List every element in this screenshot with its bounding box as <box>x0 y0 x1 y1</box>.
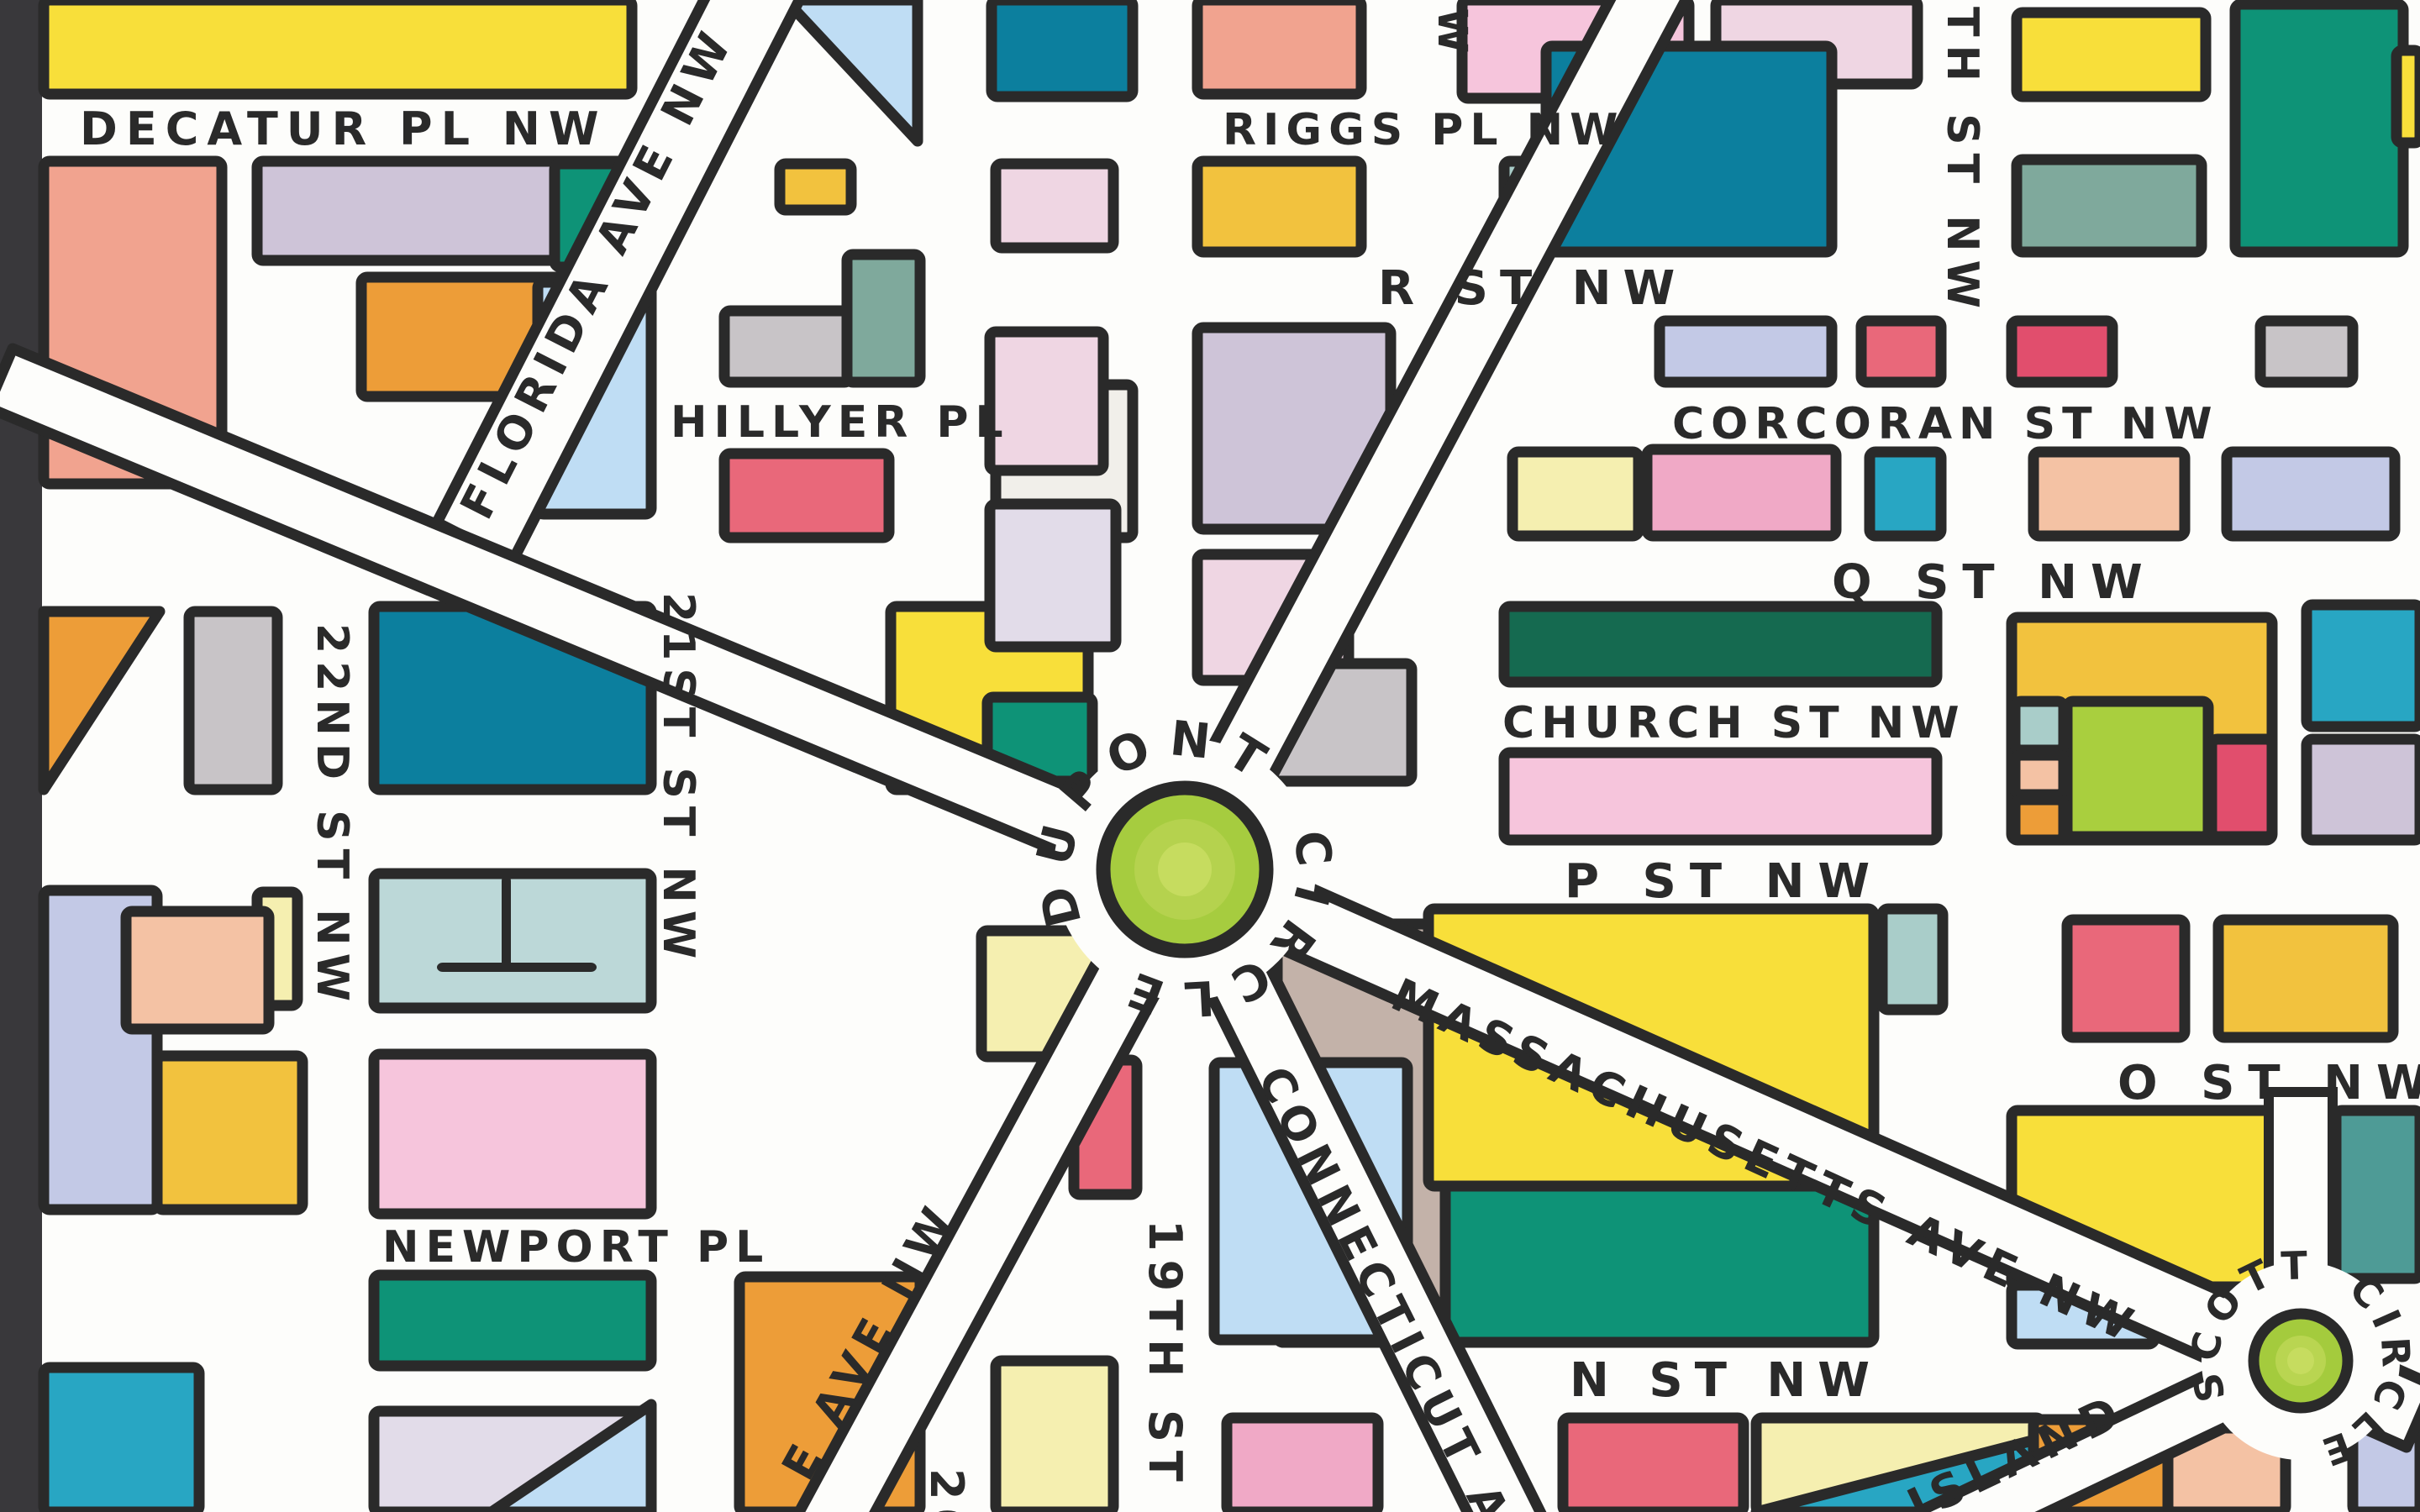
map-svg: DECATUR PL NWRIGGS PL NWR ST NWHILLYER P… <box>0 0 2420 1512</box>
scan-edge-strip <box>0 0 42 1512</box>
city-block-13 <box>2396 50 2420 143</box>
city-block-53 <box>374 1054 651 1214</box>
street-label-r-st-nw: R ST NW <box>1378 261 1686 316</box>
city-block-55 <box>374 1275 651 1366</box>
city-block-34 <box>1504 753 1937 840</box>
city-block-7 <box>992 0 1133 97</box>
street-label-21st-st-nw: 21ST ST NW <box>653 592 703 966</box>
city-block-21 <box>847 255 920 382</box>
city-block-60 <box>996 1361 1113 1512</box>
city-block-14 <box>1197 161 1361 252</box>
city-block-41 <box>2307 605 2420 727</box>
city-block-78 <box>2067 920 2185 1037</box>
city-block-27 <box>2260 321 2353 382</box>
city-block-8 <box>1197 0 1361 94</box>
city-block-24 <box>1660 321 1832 382</box>
street-label-newport-pl: NEWPORT PL <box>382 1222 770 1273</box>
street-label-decatur-pl-nw: DECATUR PL NW <box>80 102 608 155</box>
city-block-11 <box>2017 13 2206 97</box>
street-label-q-st-nw: Q ST NW <box>1832 555 2156 610</box>
city-block-33 <box>1504 606 1937 682</box>
street-label-18th-st-nw: W <box>1428 8 1476 53</box>
city-block-51 <box>502 875 511 969</box>
city-block-56 <box>44 1368 199 1512</box>
city-block-20 <box>724 311 850 382</box>
city-block-29 <box>1647 449 1836 536</box>
city-block-38 <box>2015 755 2064 795</box>
street-label-22nd-st-nw: 22ND ST NW <box>307 623 357 1009</box>
city-block-22 <box>724 454 889 538</box>
city-block-75 <box>1563 1418 1744 1512</box>
city-block-40 <box>2212 739 2272 837</box>
city-block-36 <box>2067 701 2208 837</box>
city-block-42 <box>2307 739 2420 840</box>
street-label-church-st-nw: CHURCH ST NW <box>1502 698 1966 748</box>
dupont-circle-park-center <box>1158 843 1212 896</box>
city-block-63 <box>990 504 1116 647</box>
city-block-28 <box>1512 452 1639 536</box>
street-label-p-st-nw: P ST NW <box>1565 854 1883 909</box>
city-block-71 <box>1882 909 1943 1010</box>
city-block-32 <box>2227 452 2395 536</box>
street-label-20th-st-nw: 20 <box>920 1468 973 1512</box>
city-block-37 <box>2015 701 2064 750</box>
city-block-52 <box>437 963 597 972</box>
street-label-riggs-pl-nw: RIGGS PL NW <box>1223 105 1625 155</box>
city-block-12 <box>2235 4 2403 252</box>
city-block-79 <box>2218 920 2393 1037</box>
street-label-19th-st-nw: 19TH ST <box>1139 1220 1192 1490</box>
street-label-o-st-nw: O ST NW <box>2117 1056 2420 1110</box>
city-block-19 <box>780 164 851 210</box>
street-label-n-st-nw: N ST NW <box>1570 1353 1881 1408</box>
city-block-74 <box>1227 1418 1378 1512</box>
street-label-corcoran-st-nw: CORCORAN ST NW <box>1672 399 2219 449</box>
city-block-25 <box>1861 321 1941 382</box>
city-block-30 <box>1870 452 1941 536</box>
city-block-39 <box>2015 800 2064 840</box>
city-block-54 <box>157 1056 302 1210</box>
street-label-17th-st-nw: TH ST NW <box>1937 7 1987 317</box>
city-block-26 <box>2012 321 2112 382</box>
city-block-50 <box>374 874 651 1008</box>
city-block-0 <box>44 0 632 94</box>
city-block-49 <box>126 911 269 1029</box>
city-block-46 <box>189 612 277 790</box>
dupont-map: DECATUR PL NWRIGGS PL NWR ST NWHILLYER P… <box>0 0 2420 1512</box>
scott-circle-park-center <box>2287 1347 2314 1374</box>
city-block-31 <box>2033 452 2185 536</box>
city-block-18 <box>996 164 1113 248</box>
street-label-hillyer-pl: HILLYER PL <box>671 397 1010 448</box>
city-block-17 <box>2017 160 2202 252</box>
